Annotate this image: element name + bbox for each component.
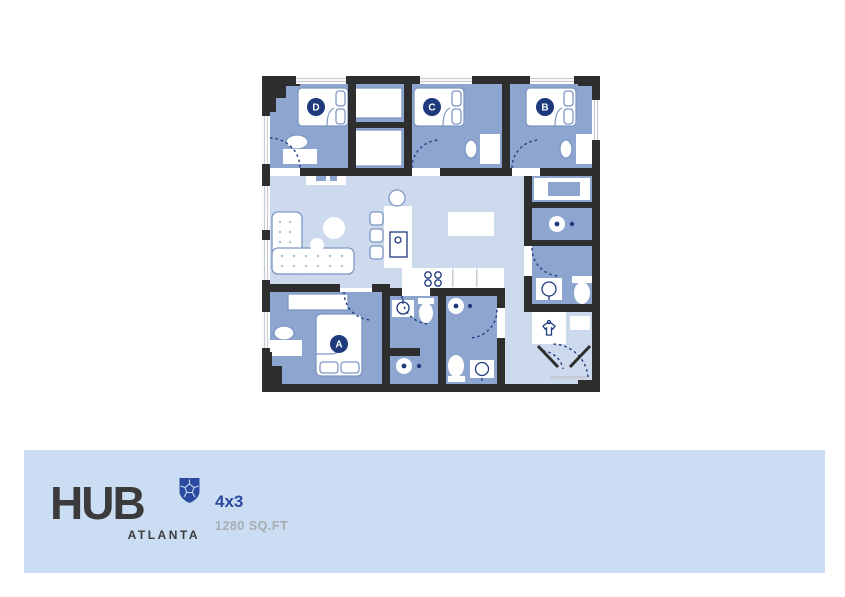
linen-closet bbox=[534, 178, 590, 200]
room-label-a-text: A bbox=[335, 340, 342, 351]
unit-area-label: 1280 SQ.FT bbox=[215, 519, 288, 533]
shield-icon bbox=[178, 477, 201, 504]
closet-a bbox=[288, 294, 348, 310]
room-label-b-text: B bbox=[541, 103, 548, 114]
room-label-d: D bbox=[307, 98, 325, 116]
room-label-d-text: D bbox=[312, 103, 319, 114]
desk-a bbox=[268, 340, 302, 356]
chair-a bbox=[274, 326, 294, 340]
stool-2 bbox=[370, 229, 383, 242]
coffee-table bbox=[323, 217, 345, 239]
stool-top bbox=[389, 190, 405, 206]
desk-c bbox=[480, 134, 500, 164]
unit-type-label: 4x3 bbox=[215, 492, 288, 512]
room-label-a: A bbox=[330, 335, 348, 353]
brand-city: ATLANTA bbox=[50, 528, 200, 542]
room-label-c: C bbox=[423, 98, 441, 116]
desk-b bbox=[576, 134, 592, 164]
unit-info: 4x3 1280 SQ.FT bbox=[215, 492, 288, 533]
entry-threshold bbox=[550, 376, 588, 379]
window-left-1 bbox=[262, 116, 270, 164]
entry-floor bbox=[505, 348, 592, 384]
chair-d bbox=[286, 135, 308, 149]
window-top-c bbox=[420, 76, 472, 84]
hall-floor bbox=[505, 288, 524, 348]
window-top-d bbox=[296, 76, 346, 84]
entry-shelf bbox=[570, 316, 590, 330]
window-top-b bbox=[530, 76, 574, 84]
dining-table bbox=[448, 212, 494, 236]
room-label-b: B bbox=[536, 98, 554, 116]
window-left-3 bbox=[262, 240, 270, 280]
closet-shelf-2 bbox=[352, 130, 402, 166]
window-right-b bbox=[592, 100, 600, 140]
chair-b bbox=[560, 140, 572, 158]
stool-1 bbox=[370, 212, 383, 225]
window-left-4 bbox=[262, 312, 270, 348]
side-table bbox=[310, 238, 324, 252]
brand-name: HUB bbox=[50, 480, 144, 526]
chair-c bbox=[465, 140, 477, 158]
stool-3 bbox=[370, 246, 383, 259]
hub-logo: HUB ATLANTA bbox=[50, 480, 200, 542]
sink-3-icon bbox=[470, 360, 494, 381]
closet-shelf-1 bbox=[354, 88, 402, 118]
sink-1-icon bbox=[536, 278, 562, 300]
kitchen-counter bbox=[402, 268, 504, 288]
footer-band: HUB ATLANTA 4x3 1280 SQ.FT bbox=[24, 450, 825, 573]
room-label-c-text: C bbox=[428, 103, 435, 114]
window-left-2 bbox=[262, 186, 270, 230]
